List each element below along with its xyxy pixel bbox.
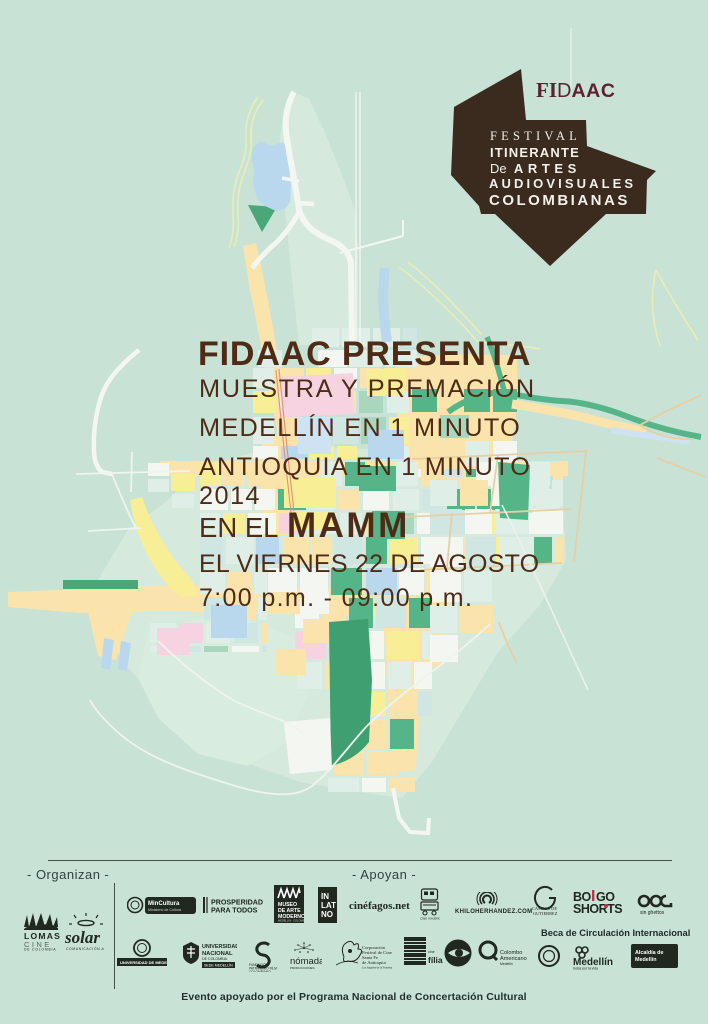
svg-text:UNIVERSIDAD: UNIVERSIDAD [202, 944, 237, 950]
svg-text:LAT: LAT [321, 901, 336, 910]
svg-text:COLOMBIANO: COLOMBIANO [249, 970, 271, 972]
svg-text:Ministerio de Cultura: Ministerio de Cultura [148, 908, 181, 912]
svg-text:SHORTS: SHORTS [573, 902, 622, 916]
svg-text:MinCultura: MinCultura [148, 901, 180, 907]
svg-text:CINE VIAJERO: CINE VIAJERO [420, 917, 440, 921]
svg-text:DE COLOMBIA: DE COLOMBIA [24, 948, 56, 951]
svg-text:PARA TODOS: PARA TODOS [211, 907, 258, 915]
svg-text:MEDELLIN - COLOMBIA: MEDELLIN - COLOMBIA [278, 919, 304, 923]
svg-text:UNIVERSIDAD DE MEDELLÍN: UNIVERSIDAD DE MEDELLÍN [120, 960, 167, 965]
svg-text:SEDE MEDELLÍN: SEDE MEDELLÍN [204, 964, 233, 968]
svg-text:GUTIERREZ: GUTIERREZ [533, 911, 558, 916]
svg-text:PRODUCCIONES: PRODUCCIONES [290, 966, 315, 970]
svg-text:PROSPERIDAD: PROSPERIDAD [211, 899, 263, 907]
svg-text:sin ghettos: sin ghettos [640, 910, 665, 915]
svg-text:de Antioquia: de Antioquia [362, 960, 386, 965]
svg-text:Medellín: Medellín [500, 962, 513, 966]
svg-text:fília: fília [428, 955, 443, 965]
svg-text:COMUNICACIÓN ACTIVA: COMUNICACIÓN ACTIVA [66, 946, 104, 951]
svg-text:DE COLOMBIA: DE COLOMBIA [202, 957, 228, 961]
svg-text:Los Angeles de la Frontera: Los Angeles de la Frontera [362, 967, 392, 970]
svg-text:solar: solar [64, 928, 100, 947]
svg-text:cine: cine [428, 950, 435, 954]
svg-text:IN: IN [321, 892, 329, 901]
svg-text:todos por la vida: todos por la vida [573, 967, 598, 970]
svg-text:NO: NO [321, 910, 333, 919]
svg-text:KHILOHERHANDEZ.COM: KHILOHERHANDEZ.COM [455, 909, 532, 914]
svg-text:Medellín: Medellín [635, 957, 657, 963]
svg-text:Alcaldía de: Alcaldía de [635, 950, 663, 956]
